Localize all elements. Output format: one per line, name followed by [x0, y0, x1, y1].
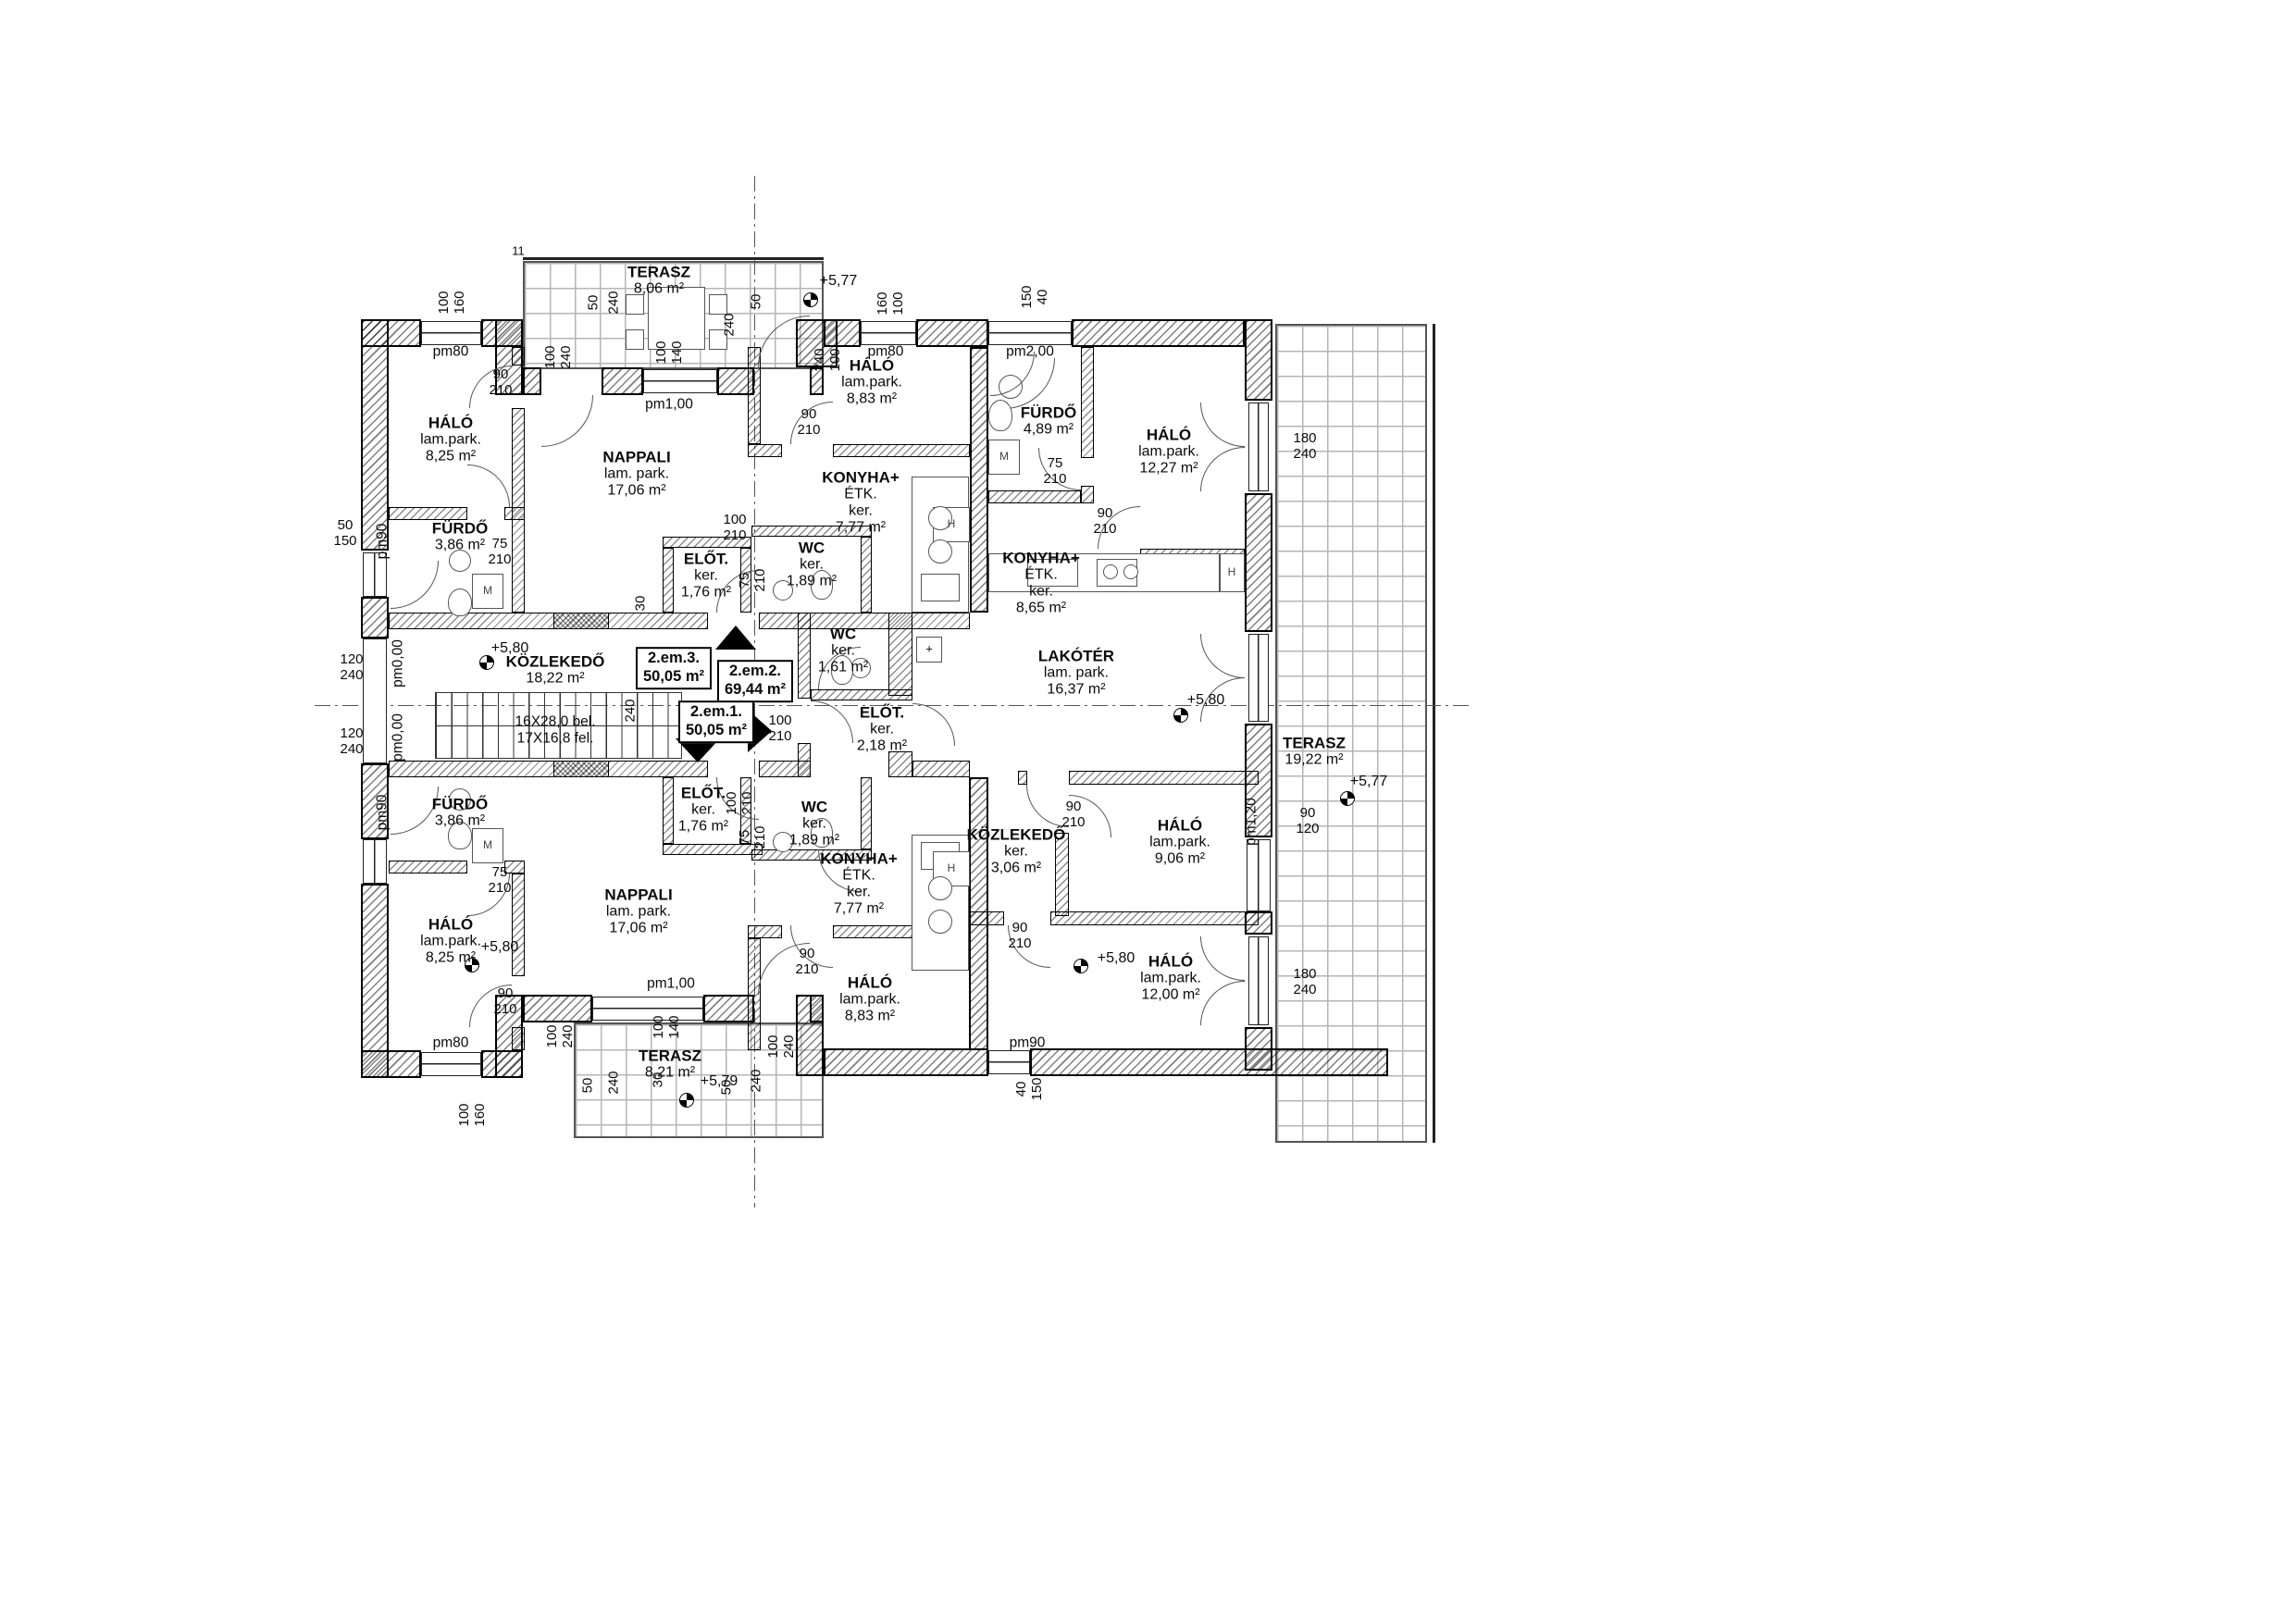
- dim-150-40-tr: 150 40: [1020, 285, 1051, 308]
- floorplan-canvas: HÁLÓ lam.park. 8,25 m²FÜRDŐ 3,86 m²NAPPA…: [0, 0, 2296, 1623]
- text-layer: HÁLÓ lam.park. 8,25 m²FÜRDŐ 3,86 m²NAPPA…: [0, 0, 2296, 1623]
- room-furdo-b: FÜRDŐ 3,86 m²: [432, 795, 488, 829]
- sill-pm0-2: pm0,00: [390, 713, 406, 762]
- room-elot-r: ELŐT. ker. 2,18 m²: [855, 703, 910, 754]
- dim-50-t1: 50: [587, 295, 602, 311]
- room-furdo-r: FÜRDŐ 4,89 m²: [1021, 403, 1076, 438]
- room-halo-bl: HÁLÓ lam.park. 8,25 m²: [416, 915, 486, 966]
- dim-90-210-d3: 90 210: [797, 407, 820, 439]
- dim-90-210-kr: 90 210: [1061, 799, 1085, 831]
- dim-240-100-t: 240 100: [813, 348, 844, 371]
- sill-pm80-bl: pm80: [433, 1035, 469, 1051]
- dim-240-b1: 240: [607, 1071, 623, 1094]
- room-halo-r1: HÁLÓ lam.park. 12,27 m²: [1135, 426, 1204, 477]
- dim-50-b1: 50: [581, 1078, 597, 1094]
- fx-m-t: M: [483, 585, 492, 598]
- room-kozlekedo-c: KÖZLEKEDŐ 18,22 m²: [506, 652, 605, 687]
- level-terasz-r: +5,77: [1350, 774, 1387, 790]
- dim-180-240-r1: 180 240: [1293, 431, 1316, 463]
- dim-90-210-bl: 90 210: [493, 986, 516, 1018]
- level-terasz-t: +5,77: [820, 273, 857, 290]
- fx-m-r: M: [999, 451, 1009, 464]
- apt-box-2: 2.em.2. 69,44 m²: [717, 660, 793, 702]
- stair-text: 16X28,0 bel. 17X16,8 fel.: [515, 714, 595, 747]
- dim-100-240-b2: 100 240: [545, 1024, 577, 1047]
- dim-100-210-sr: 100 210: [768, 713, 791, 745]
- dim-75-210-wt: 75 210: [738, 568, 769, 591]
- fx-h-b: H: [948, 862, 956, 875]
- fx-h-t: H: [948, 518, 956, 531]
- room-halo-tm: HÁLÓ lam.park. 8,83 m²: [838, 356, 907, 407]
- dim-100-160-tl: 100 160: [437, 291, 468, 314]
- room-nappali-t: NAPPALI lam. park. 17,06 m²: [600, 448, 673, 499]
- dim-100-140-b: 100 140: [652, 1015, 683, 1038]
- room-furdo-t: FÜRDŐ 3,86 m²: [432, 519, 488, 553]
- dim-240-t2: 240: [723, 313, 738, 336]
- dim-100-210-eb: 100 210: [725, 791, 756, 814]
- fx-h-r: H: [1228, 566, 1236, 579]
- sill-pm80-tm: pm80: [868, 343, 904, 360]
- sill-pm90-lt: pm90: [374, 524, 391, 560]
- room-kozlekedo-r: KÖZLEKEDŐ ker. 3,06 m²: [967, 825, 1066, 876]
- mark-plus: +: [925, 643, 933, 657]
- sill-pm90-lb: pm90: [374, 795, 391, 831]
- dim-75-210-ft: 75 210: [488, 537, 511, 568]
- dim-240-stair: 240: [624, 699, 639, 722]
- room-wc-r: WC ker. 1,61 m²: [816, 625, 871, 675]
- dim-180-240-r2: 180 240: [1293, 967, 1316, 998]
- room-wc-t: WC ker. 1,89 m²: [785, 539, 839, 589]
- dim-30-t: 30: [634, 596, 650, 612]
- dim-75-210-wb: 75 210: [738, 825, 769, 849]
- dim-100-210-et: 100 210: [723, 513, 746, 544]
- sill-pm1-t: pm1,00: [645, 396, 693, 413]
- dim-90-210-r1: 90 210: [1093, 506, 1116, 538]
- dim-40-150-br: 40 150: [1014, 1077, 1046, 1100]
- dim-30-b: 30: [652, 1072, 667, 1088]
- room-halo-r2: HÁLÓ lam.park. 9,06 m²: [1146, 816, 1215, 867]
- sill-pm120-r: pm1,20: [1243, 798, 1260, 846]
- level-halo-bl: +5,80: [481, 939, 518, 956]
- mark-11: 11: [512, 245, 525, 259]
- apt-box-1: 2.em.1. 50,05 m²: [678, 700, 754, 743]
- apt-box-3: 2.em.3. 50,05 m²: [636, 647, 712, 689]
- dim-90-120-r: 90 120: [1296, 806, 1319, 837]
- sill-pm90-br: pm90: [1010, 1035, 1046, 1051]
- dim-240-b2: 240: [750, 1069, 765, 1092]
- room-terasz-r: TERASZ 19,22 m²: [1283, 734, 1346, 768]
- room-elot-b: ELŐT. ker. 1,76 m²: [676, 784, 731, 835]
- dim-100-140-t: 100 140: [654, 341, 686, 364]
- level-halo-r3: +5,80: [1098, 950, 1135, 967]
- fx-m-b: M: [483, 839, 492, 852]
- dim-75-210-fr: 75 210: [1043, 456, 1066, 488]
- dim-50-t2: 50: [750, 294, 765, 310]
- room-konyha-b: KONYHA+ ÉTK. ker. 7,77 m²: [820, 849, 898, 917]
- dim-90-210-r3: 90 210: [1008, 921, 1031, 952]
- dim-240-t1: 240: [607, 291, 623, 314]
- dim-120-240-l2: 120 240: [340, 726, 363, 758]
- room-konyha-t: KONYHA+ ÉTK. ker. 7,77 m²: [822, 468, 900, 536]
- dim-100-240-bd: 100 240: [766, 1035, 798, 1058]
- dim-50-150-l: 50 150: [333, 518, 356, 550]
- sill-pm0-1: pm0,00: [390, 639, 406, 688]
- dim-90-210-bm: 90 210: [795, 947, 818, 978]
- room-elot-t: ELŐT. ker. 1,76 m²: [679, 550, 734, 601]
- room-terasz-t: TERASZ 8,06 m²: [627, 263, 690, 297]
- room-halo-tl: HÁLÓ lam.park. 8,25 m²: [416, 414, 486, 465]
- sill-pm1-b: pm1,00: [647, 975, 695, 992]
- dim-100-160-bl: 100 160: [457, 1103, 489, 1126]
- dim-50-b2: 50: [720, 1080, 736, 1096]
- room-lakoter: LAKÓTÉR lam. park. 16,37 m²: [1038, 647, 1114, 698]
- sill-pm2-tr: pm2,00: [1006, 343, 1054, 360]
- level-kozlekedo: +5,80: [491, 640, 528, 657]
- room-halo-r3: HÁLÓ lam.park. 12,00 m²: [1136, 952, 1206, 1003]
- level-lakoter: +5,80: [1187, 692, 1224, 709]
- dim-90-210-d1: 90 210: [489, 367, 512, 399]
- room-halo-bm: HÁLÓ lam.park. 8,83 m²: [836, 973, 905, 1024]
- sill-pm80-tl: pm80: [433, 343, 469, 360]
- dim-75-210-fb: 75 210: [488, 865, 511, 897]
- dim-120-240-l1: 120 240: [340, 652, 363, 684]
- room-wc-b: WC ker. 1,89 m²: [788, 798, 842, 849]
- room-nappali-b: NAPPALI lam. park. 17,06 m²: [602, 886, 675, 936]
- room-terasz-b: TERASZ 8,21 m²: [639, 1047, 701, 1081]
- room-konyha-r: KONYHA+ ÉTK. ker. 8,65 m²: [1002, 549, 1080, 616]
- dim-160-100-tm: 160 100: [875, 291, 907, 315]
- dim-100-240-t: 100 240: [543, 345, 575, 368]
